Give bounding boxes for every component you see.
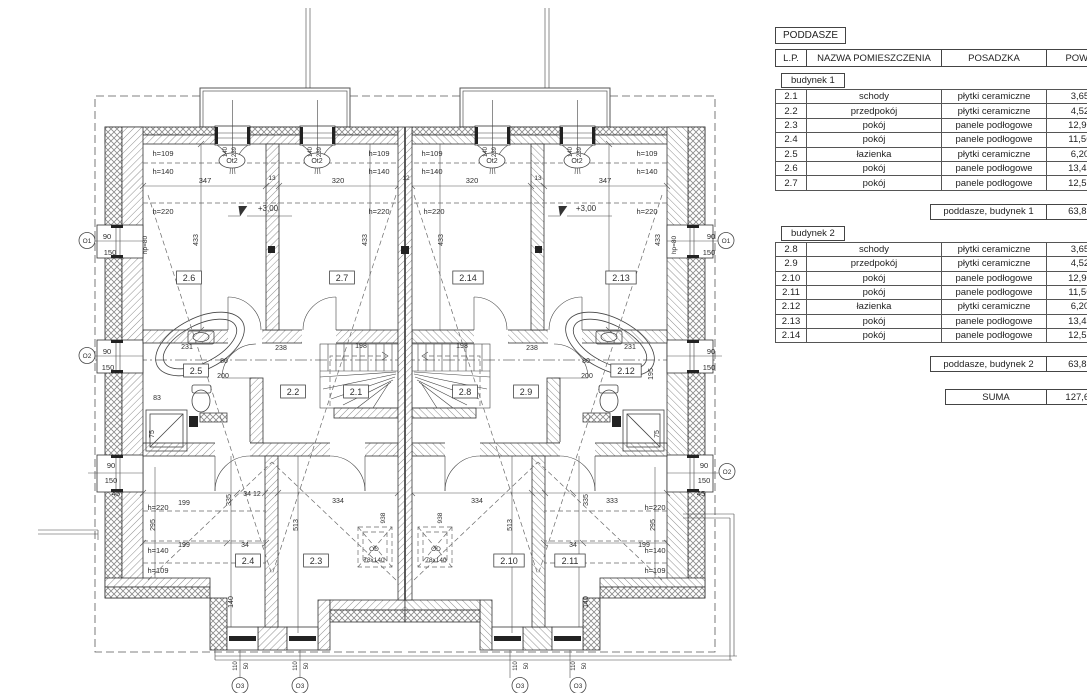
svg-text:78x140: 78x140 [363,557,385,564]
dim-label: OD [369,546,379,553]
svg-text:2.14: 2.14 [459,273,477,283]
dim-label: 239 [577,146,583,157]
table-cell: 2.6 [776,162,806,175]
svg-text:2.3: 2.3 [310,556,323,566]
table-cell: panele podłogowe [941,286,1046,299]
dim-label: h=220 [152,207,173,216]
table-header-cell: POW.UŻ. [1046,50,1087,66]
svg-text:2.6: 2.6 [183,273,196,283]
total-label: SUMA [946,390,1046,404]
table-cell: przedpokój [806,104,941,117]
table-cell: 4,52m² [1046,257,1087,270]
dim-label: 199 [178,500,190,507]
dim-label: h=140 [368,167,389,176]
dim-label: h=109 [368,149,389,158]
subtotal-row: poddasze, budynek 163,81m² [930,204,1087,220]
table-cell: 2.13 [776,315,806,328]
svg-text:45: 45 [697,489,705,498]
svg-text:140: 140 [583,596,590,608]
table-cell: 3,65m² [1046,90,1087,103]
dim-label: 335 [226,494,233,506]
table-cell: płytki ceramiczne [941,257,1046,270]
svg-text:938: 938 [437,512,444,523]
table-cell: pokój [806,329,941,342]
table-cell: pokój [806,286,941,299]
table-cell: schody [806,243,941,256]
svg-text:335: 335 [226,494,233,506]
svg-text:199: 199 [178,542,190,549]
svg-text:513: 513 [293,519,300,531]
table-row: 2.10pokójpanele podłogowe12,90m² [775,271,1087,286]
unit-left [88,88,405,678]
table-cell: panele podłogowe [941,162,1046,175]
subtotal-value: 63,81m² [1046,205,1087,219]
dim-label: 239 [492,146,498,157]
dim-label: 199 [178,542,190,549]
svg-text:h=220: h=220 [368,207,389,216]
dim-label: 12 [402,175,410,182]
table-cell: panele podłogowe [941,329,1046,342]
svg-text:75: 75 [149,430,156,438]
dim-label: 333 [606,498,618,505]
dim-label: 110 [571,661,577,671]
svg-text:433: 433 [438,234,445,246]
bottom-wall-and-bay [105,578,405,650]
svg-text:h=109: h=109 [147,566,168,575]
svg-text:h=220: h=220 [644,503,665,512]
dim-label: h=220 [423,207,444,216]
svg-text:50: 50 [304,662,310,669]
svg-text:h=140: h=140 [644,546,665,555]
dim-label: 231 [181,344,193,351]
dim-label: 150 [703,363,716,372]
table-cell: płytki ceramiczne [941,104,1046,117]
svg-text:2.8: 2.8 [459,387,472,397]
svg-text:OD: OD [431,546,441,553]
dim-label: 513 [507,519,514,531]
table-cell: płytki ceramiczne [941,243,1046,256]
subtotal-row: poddasze, budynek 263,81m² [930,356,1087,372]
dim-label: 150 [104,248,117,257]
svg-text:h=109: h=109 [152,149,173,158]
svg-text:335: 335 [583,494,590,506]
dim-label: 50 [244,662,250,669]
dim-label: 34 [241,542,249,549]
svg-text:2.10: 2.10 [500,556,518,566]
svg-text:239: 239 [317,146,323,157]
svg-text:h=140: h=140 [147,546,168,555]
svg-text:h=140: h=140 [368,167,389,176]
svg-text:O1: O1 [722,238,731,245]
svg-text:h=140: h=140 [421,167,442,176]
table-cell: 2.5 [776,148,806,161]
room-number-label: 2.7 [330,271,355,284]
dim-label: h=140 [152,167,173,176]
svg-text:140: 140 [308,146,314,157]
dim-label: 334 [471,498,483,505]
dim-label: 150 [703,248,716,257]
svg-text:78x140: 78x140 [425,557,447,564]
table-title: PODDASZE [775,27,846,44]
dim-label: 83 [153,395,161,402]
room-number-label: 2.14 [453,271,483,284]
dim-label: h=109 [147,566,168,575]
dim-label: 433 [193,234,200,246]
svg-text:80: 80 [220,358,228,365]
dim-label: 320 [332,176,345,185]
svg-text:239: 239 [492,146,498,157]
svg-text:O3: O3 [236,683,245,690]
table-cell: panele podłogowe [941,119,1046,132]
table-cell: 6,20m² [1046,300,1087,313]
table-cell: schody [806,90,941,103]
svg-text:45: 45 [112,489,120,498]
svg-text:OD: OD [369,546,379,553]
room-number-label: 2.1 [344,385,369,398]
marker-circle: O3 [292,678,308,693]
dim-label: h=109 [636,149,657,158]
svg-text:83: 83 [153,395,161,402]
svg-text:13: 13 [268,175,276,182]
svg-text:90: 90 [700,461,708,470]
svg-text:231: 231 [624,344,636,351]
table-header-cell: L.P. [776,53,806,64]
party-wall [398,127,412,600]
room-table: PODDASZE L.P.NAZWA POMIESZCZENIAPOSADZKA… [775,27,1087,405]
table-header-cell: NAZWA POMIESZCZENIA [806,50,941,66]
marker-circle: O3 [512,678,528,693]
svg-text:75: 75 [654,430,661,438]
svg-text:O1: O1 [83,238,92,245]
svg-text:239: 239 [577,146,583,157]
dim-label: +3,00 [576,204,597,213]
table-row: 2.6pokójpanele podłogowe13,45m² [775,161,1087,176]
toilet-icon [192,385,211,393]
table-cell: 2.10 [776,272,806,285]
svg-text:295: 295 [150,519,157,531]
marker-circle: O1 [79,233,95,249]
svg-text:h=220: h=220 [423,207,444,216]
dim-label: 433 [362,234,369,246]
svg-text:2.1: 2.1 [350,387,363,397]
svg-text:200: 200 [581,373,593,380]
dim-label: 13 [534,175,542,182]
table-section-label: budynek 2 [781,226,845,241]
svg-text:231: 231 [181,344,193,351]
table-row: 2.5łazienkapłytki ceramiczne6,20m² [775,147,1087,162]
subtotal-label: poddasze, budynek 1 [931,205,1046,219]
svg-text:238: 238 [526,345,538,352]
svg-text:140: 140 [223,146,229,157]
room-number-label: 2.13 [606,271,636,284]
table-cell: panele podłogowe [941,272,1046,285]
dim-label: 45 [112,489,120,498]
table-row: 2.4pokójpanele podłogowe11,56m² [775,132,1087,147]
dim-label: 140 [583,596,590,608]
dim-label: h=140 [147,546,168,555]
svg-text:2.13: 2.13 [612,273,630,283]
dim-label: h=220 [147,503,168,512]
svg-text:O3: O3 [516,683,525,690]
svg-text:hp=80: hp=80 [671,235,678,254]
table-cell: 2.14 [776,329,806,342]
dim-label: hp=80 [142,235,149,254]
svg-text:938: 938 [380,512,387,523]
dim-label: 198 [355,343,367,350]
dim-label: 34 [569,542,577,549]
dim-label: 110 [513,661,519,671]
marker-circle: O2 [79,348,95,364]
marker-circle: O3 [232,678,248,693]
dim-label: 140 [228,596,235,608]
dim-label: 78x140 [363,557,385,564]
table-cell: 2.11 [776,286,806,299]
table-cell: 3,65m² [1046,243,1087,256]
table-cell: łazienka [806,300,941,313]
svg-text:h=109: h=109 [636,149,657,158]
dim-label: h=109 [421,149,442,158]
svg-text:110: 110 [571,661,577,671]
dim-label: 150 [105,476,118,485]
svg-text:2.9: 2.9 [520,387,533,397]
svg-text:195: 195 [648,368,655,380]
svg-text:80: 80 [582,358,590,365]
dim-label: 938 [437,512,444,523]
section-marker-lines [306,8,549,88]
table-cell: 2.8 [776,243,806,256]
dim-label: h=220 [636,207,657,216]
svg-text:433: 433 [193,234,200,246]
table-row: 2.13pokójpanele podłogowe13,45m² [775,314,1087,329]
dim-label: 90 [707,232,715,241]
svg-text:150: 150 [102,363,115,372]
svg-text:+3,00: +3,00 [258,204,279,213]
marker-circle: O1 [718,233,734,249]
dim-label: 320 [466,176,479,185]
table-cell: panele podłogowe [941,176,1046,189]
subtotal-value: 63,81m² [1046,357,1087,371]
dim-label: 334 [332,498,344,505]
dim-label: 80 [582,358,590,365]
unit-right-mirrored [405,88,722,678]
svg-text:334: 334 [471,498,483,505]
room-number-label: 2.10 [494,554,524,567]
table-cell: 12,53m² [1046,176,1087,189]
svg-text:150: 150 [703,363,716,372]
dim-label: 75 [654,430,661,438]
dim-label: hp=80 [671,235,678,254]
svg-text:200: 200 [217,373,229,380]
table-row: 2.1schodypłytki ceramiczne3,65m² [775,89,1087,104]
dim-label: 150 [698,476,711,485]
table-cell: płytki ceramiczne [941,300,1046,313]
table-cell: płytki ceramiczne [941,148,1046,161]
dim-label: 150 [102,363,115,372]
svg-text:334: 334 [332,498,344,505]
svg-text:333: 333 [606,498,618,505]
svg-text:h=109: h=109 [368,149,389,158]
svg-text:Ot2: Ot2 [486,158,497,165]
table-cell: 12,53m² [1046,329,1087,342]
table-cell: 12,90m² [1046,119,1087,132]
table-cell: 4,52m² [1046,104,1087,117]
svg-text:110: 110 [233,661,239,671]
dim-label: 140 [483,146,489,157]
table-cell: 6,20m² [1046,148,1087,161]
dim-label: 239 [317,146,323,157]
svg-text:433: 433 [655,234,662,246]
table-cell: 2.3 [776,119,806,132]
dim-label: 80 [220,358,228,365]
dormer-outline [200,88,350,127]
svg-text:O2: O2 [723,469,732,476]
svg-text:2.2: 2.2 [287,387,300,397]
svg-text:140: 140 [228,596,235,608]
dim-label: 195 [648,368,655,380]
table-row: 2.7pokójpanele podłogowe12,53m² [775,175,1087,190]
table-cell: pokój [806,162,941,175]
dim-label: 110 [293,661,299,671]
svg-text:h=220: h=220 [147,503,168,512]
svg-text:347: 347 [599,176,612,185]
svg-text:34 12: 34 12 [243,491,261,498]
table-cell: panele podłogowe [941,315,1046,328]
dim-label: 433 [655,234,662,246]
dim-label: 198 [456,343,468,350]
svg-text:O2: O2 [83,353,92,360]
svg-text:50: 50 [524,662,530,669]
dim-label: 50 [582,662,588,669]
room-number-label: 2.9 [514,385,539,398]
table-cell: przedpokój [806,257,941,270]
svg-text:13: 13 [534,175,542,182]
dim-label: 295 [650,519,657,531]
table-row: 2.3pokójpanele podłogowe12,90m² [775,118,1087,133]
table-cell: 12,90m² [1046,272,1087,285]
svg-text:h=109: h=109 [644,566,665,575]
room-number-label: 2.12 [611,364,641,377]
svg-text:34: 34 [569,542,577,549]
svg-text:50: 50 [582,662,588,669]
svg-text:2.7: 2.7 [336,273,349,283]
floor-plan-drawing: 2.62.72.142.132.52.22.12.82.92.122.42.32… [0,0,770,693]
svg-text:90: 90 [103,347,111,356]
svg-text:238: 238 [275,345,287,352]
table-cell: łazienka [806,148,941,161]
dim-label: +3,00 [258,204,279,213]
dim-label: OD [431,546,441,553]
total-value: 127,62m² [1046,390,1087,404]
table-cell: pokój [806,119,941,132]
svg-text:295: 295 [650,519,657,531]
room-number-label: 2.11 [555,554,585,567]
floor-plan-svg: 2.62.72.142.132.52.22.12.82.92.122.42.32… [0,0,770,693]
svg-text:110: 110 [293,661,299,671]
dim-label: 140 [223,146,229,157]
table-sections: budynek 12.1schodypłytki ceramiczne3,65m… [775,67,1087,372]
svg-text:h=220: h=220 [636,207,657,216]
room-number-label: 2.6 [177,271,202,284]
washer-icon [189,416,198,427]
svg-text:12: 12 [402,175,410,182]
dim-label: 938 [380,512,387,523]
dim-label: 78x140 [425,557,447,564]
svg-text:2.4: 2.4 [242,556,255,566]
svg-text:90: 90 [103,232,111,241]
svg-text:90: 90 [707,232,715,241]
dim-label: h=220 [368,207,389,216]
dim-label: 239 [232,146,238,157]
table-header: L.P.NAZWA POMIESZCZENIAPOSADZKAPOW.UŻ. [775,49,1087,67]
svg-text:150: 150 [698,476,711,485]
table-row: 2.12łazienkapłytki ceramiczne6,20m² [775,299,1087,314]
table-cell: 2.9 [776,257,806,270]
dim-label: 90 [707,347,715,356]
svg-text:Ot2: Ot2 [311,158,322,165]
svg-text:50: 50 [244,662,250,669]
svg-text:433: 433 [362,234,369,246]
svg-text:347: 347 [199,176,212,185]
table-cell: 2.7 [776,176,806,189]
dim-label: 140 [308,146,314,157]
marker-circle: O3 [570,678,586,693]
table-cell: 2.2 [776,104,806,117]
svg-text:O3: O3 [574,683,583,690]
table-cell: 11,56m² [1046,286,1087,299]
dim-label: 90 [700,461,708,470]
table-row: 2.11pokójpanele podłogowe11,56m² [775,285,1087,300]
dim-label: 75 [149,430,156,438]
svg-text:2.12: 2.12 [617,366,635,376]
dim-label: 45 [697,489,705,498]
svg-text:198: 198 [456,343,468,350]
dim-label: h=220 [644,503,665,512]
dim-label: 90 [103,232,111,241]
svg-text:34: 34 [241,542,249,549]
dim-label: 50 [304,662,310,669]
room-number-label: 2.8 [453,385,478,398]
dim-label: 347 [199,176,212,185]
table-cell: 2.1 [776,90,806,103]
table-cell: panele podłogowe [941,133,1046,146]
dim-label: h=140 [644,546,665,555]
svg-text:O3: O3 [296,683,305,690]
table-cell: 13,45m² [1046,162,1087,175]
dim-label: 433 [438,234,445,246]
table-row: 2.2przedpokójpłytki ceramiczne4,52m² [775,103,1087,118]
room-number-label: 2.3 [304,554,329,567]
dim-label: 200 [217,373,229,380]
dim-label: 200 [581,373,593,380]
svg-text:110: 110 [513,661,519,671]
dim-label: 295 [150,519,157,531]
table-cell: pokój [806,133,941,146]
svg-text:h=140: h=140 [152,167,173,176]
svg-text:90: 90 [107,461,115,470]
room-number-label: 2.2 [281,385,306,398]
room-number-label: 2.4 [236,554,261,567]
dim-label: 231 [624,344,636,351]
svg-text:140: 140 [568,146,574,157]
svg-text:140: 140 [483,146,489,157]
total-row: SUMA 127,62m² [945,389,1087,405]
dim-label: 238 [526,345,538,352]
svg-text:90: 90 [707,347,715,356]
svg-text:198: 198 [355,343,367,350]
dim-label: 110 [233,661,239,671]
svg-text:h=109: h=109 [421,149,442,158]
table-section-label: budynek 1 [781,73,845,88]
